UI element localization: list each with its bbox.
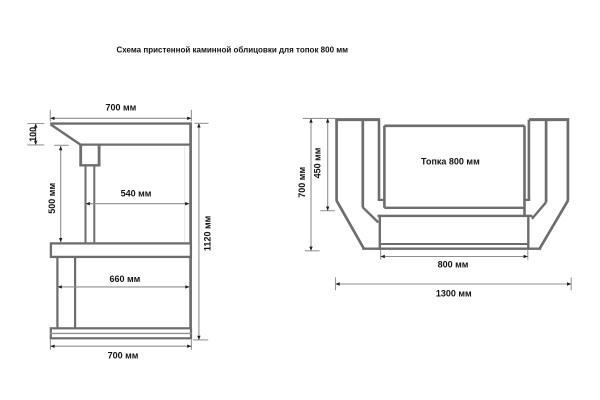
svg-text:660 мм: 660 мм <box>109 274 140 284</box>
svg-text:700 мм: 700 мм <box>105 102 136 112</box>
svg-text:1120 мм: 1120 мм <box>203 215 213 251</box>
svg-text:700 мм: 700 мм <box>108 350 139 360</box>
svg-text:500 мм: 500 мм <box>47 183 57 214</box>
svg-text:450 мм: 450 мм <box>313 147 323 178</box>
svg-text:700 мм: 700 мм <box>297 167 307 198</box>
svg-text:540 мм: 540 мм <box>121 189 152 199</box>
svg-text:Схема пристенной каминной обли: Схема пристенной каминной облицовки для … <box>117 45 349 54</box>
svg-text:800 мм: 800 мм <box>438 260 469 270</box>
svg-text:100: 100 <box>28 127 38 142</box>
svg-text:1300 мм: 1300 мм <box>436 288 472 298</box>
svg-text:Топка 800 мм: Топка 800 мм <box>421 157 480 167</box>
